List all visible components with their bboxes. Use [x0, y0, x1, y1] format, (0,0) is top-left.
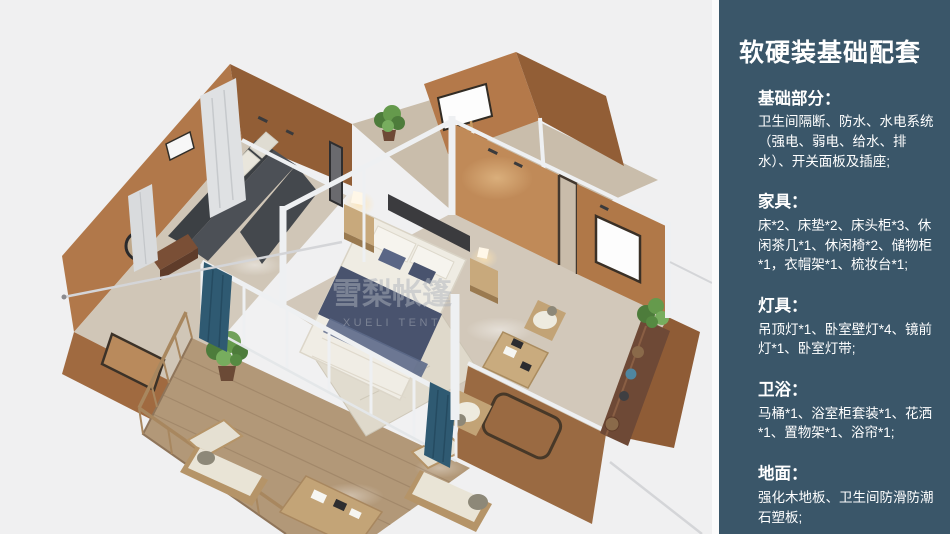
- watermark-cn: 雪梨帐篷: [332, 278, 452, 311]
- section-body: 卫生间隔断、防水、水电系统（强电、弱电、给水、排水）、开关面板及插座;: [758, 112, 938, 171]
- section-body: 强化木地板、卫生间防滑防潮石塑板;: [758, 488, 938, 527]
- pole-cap: [62, 295, 67, 300]
- sidebar-section-furniture: 家具： 床*2、床垫*2、床头柜*3、休闲茶几*1、休闲椅*2、储物柜*1，衣帽…: [758, 193, 936, 275]
- sidebar: 软硬装基础配套 基础部分： 卫生间隔断、防水、水电系统（强电、弱电、给水、排水）…: [719, 0, 950, 534]
- sidebar-section-bathroom: 卫浴： 马桶*1、浴室柜套装*1、花洒*1、置物架*1、浴帘*1;: [758, 381, 936, 443]
- section-heading: 家具：: [758, 193, 936, 212]
- doorway: [559, 175, 577, 274]
- watermark-en: XUELI TENT: [343, 317, 441, 329]
- curtain-teal: [199, 262, 232, 352]
- section-body: 马桶*1、浴室柜套装*1、花洒*1、置物架*1、浴帘*1;: [758, 404, 938, 443]
- sidebar-content: 基础部分： 卫生间隔断、防水、水电系统（强电、弱电、给水、排水）、开关面板及插座…: [758, 90, 936, 528]
- watermark: 雪梨帐篷 XUELI TENT: [332, 278, 452, 329]
- sidebar-section-lighting: 灯具： 吊顶灯*1、卧室壁灯*4、镜前灯*1、卧室灯带;: [758, 297, 936, 359]
- section-heading: 基础部分：: [758, 90, 936, 109]
- standing-mirror: [330, 142, 342, 206]
- sidebar-title: 软硬装基础配套: [739, 40, 936, 68]
- floorplan-svg: 雪梨帐篷 XUELI TENT: [0, 0, 712, 534]
- section-heading: 灯具：: [758, 297, 936, 316]
- section-body: 床*2、床垫*2、床头柜*3、休闲茶几*1、休闲椅*2、储物柜*1，衣帽架*1、…: [758, 216, 938, 275]
- slide: 雪梨帐篷 XUELI TENT 软硬装基础配套 基础部分： 卫生间隔断、防水、水…: [0, 0, 950, 534]
- section-body: 吊顶灯*1、卧室壁灯*4、镜前灯*1、卧室灯带;: [758, 320, 938, 359]
- section-heading: 地面：: [758, 465, 936, 484]
- section-heading: 卫浴：: [758, 381, 936, 400]
- sidebar-section-flooring: 地面： 强化木地板、卫生间防滑防潮石塑板;: [758, 465, 936, 527]
- floorplan-render: 雪梨帐篷 XUELI TENT: [0, 0, 712, 534]
- sidebar-section-basics: 基础部分： 卫生间隔断、防水、水电系统（强电、弱电、给水、排水）、开关面板及插座…: [758, 90, 936, 172]
- divider: [712, 0, 719, 534]
